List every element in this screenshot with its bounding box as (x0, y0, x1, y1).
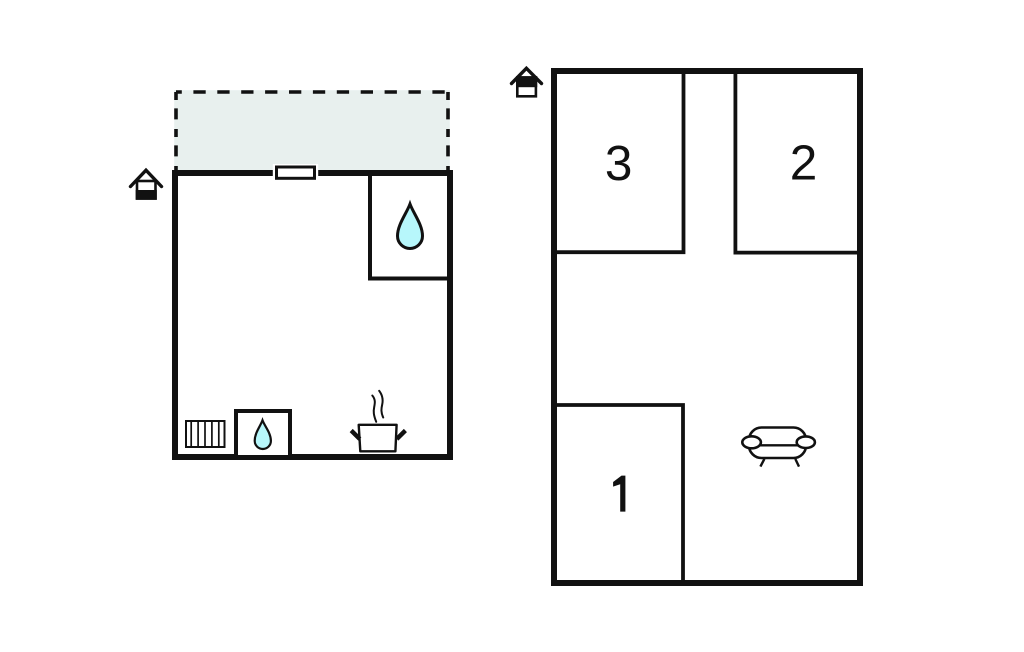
svg-text:3: 3 (605, 136, 633, 191)
svg-text:2: 2 (790, 136, 818, 191)
